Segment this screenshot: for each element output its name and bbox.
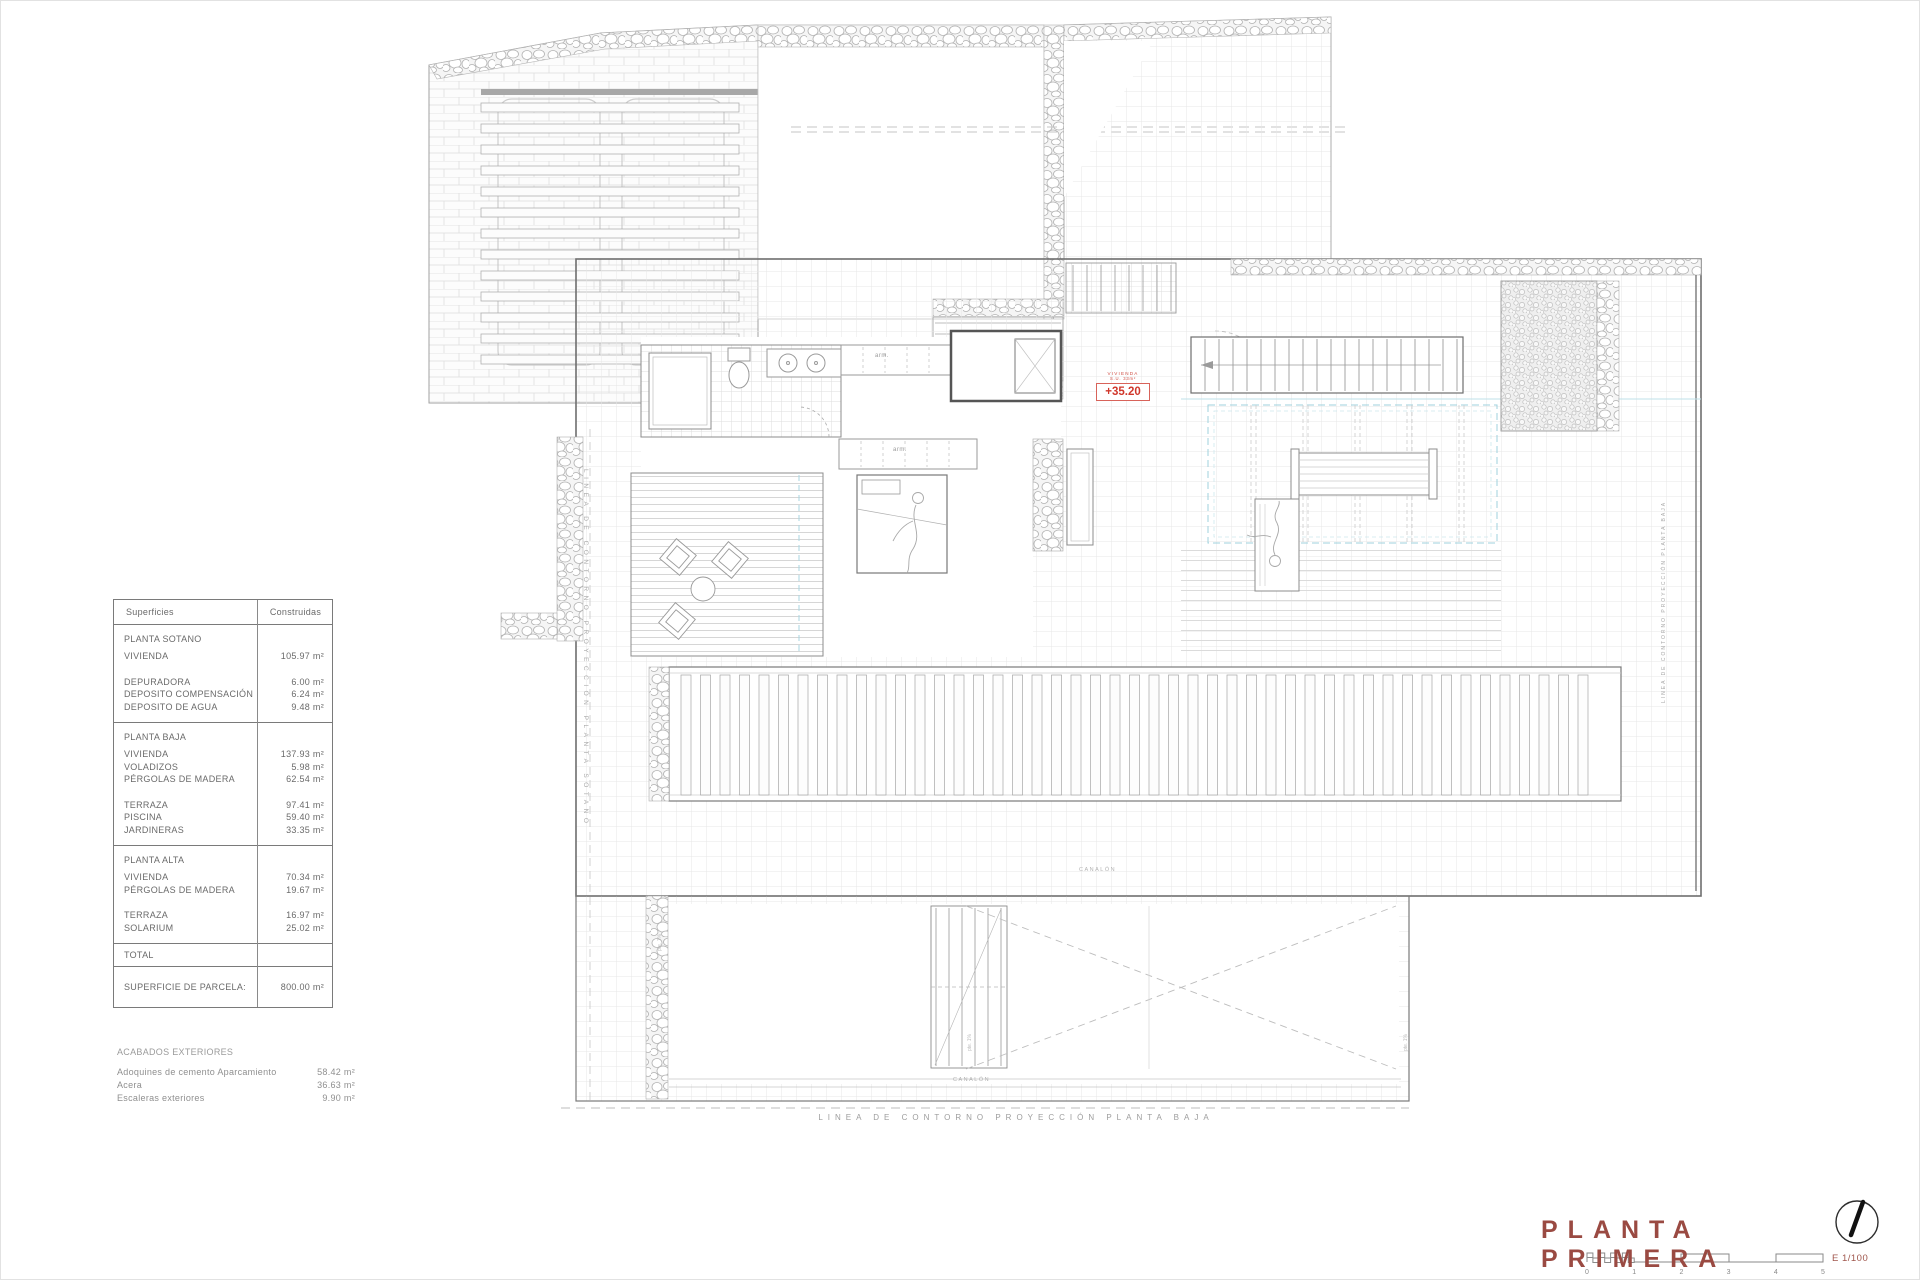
parcel-label: SUPERFICIE DE PARCELA:: [114, 982, 257, 992]
table-section: PLANTA BAJAVIVIENDA137.93 m²VOLADIZOS5.9…: [114, 723, 332, 846]
table-section: PLANTA ALTAVIVIENDA70.34 m²PÉRGOLAS DE M…: [114, 846, 332, 944]
area-row: JARDINERAS33.35 m²: [114, 824, 332, 837]
deck-terrace-left: [631, 473, 823, 656]
slope-label-1: pte. 1%: [657, 934, 663, 951]
area-row: VOLADIZOS5.98 m²: [114, 761, 332, 774]
gutter-label-bottom: CANALÓN: [953, 1077, 990, 1083]
area-row: SOLARIUM25.02 m²: [114, 922, 332, 935]
elevation-area-note: S.U. 33m²: [1089, 376, 1157, 381]
parcel-row: SUPERFICIE DE PARCELA: 800.00 m²: [114, 967, 332, 1007]
gravel-patio: [1501, 281, 1619, 431]
area-row: VIVIENDA105.97 m²: [114, 650, 332, 663]
pergola-beam: [481, 89, 758, 95]
total-row: TOTAL: [114, 944, 332, 967]
area-row: PISCINA59.40 m²: [114, 811, 332, 824]
double-sink: [767, 349, 841, 377]
bedroom: [857, 475, 947, 573]
wardrobe-arm-2: [839, 439, 977, 469]
area-row: TERRAZA16.97 m²: [114, 909, 332, 922]
section-name: PLANTA ALTA: [114, 852, 332, 871]
area-row: VIVIENDA137.93 m²: [114, 748, 332, 761]
table-section: PLANTA SOTANOVIVIENDA105.97 m²DEPURADORA…: [114, 625, 332, 723]
table-column-divider: [257, 600, 258, 1007]
area-row: DEPOSITO COMPENSACIÓN6.24 m²: [114, 688, 332, 701]
table-body: PLANTA SOTANOVIVIENDA105.97 m²DEPURADORA…: [114, 625, 332, 944]
slope-label-2: pte. 1%: [967, 1034, 973, 1051]
toilet: [728, 348, 750, 388]
area-row: TERRAZA97.41 m²: [114, 799, 332, 812]
elevation-marker: VIVIENDA S.U. 33m² +35.20: [1089, 371, 1157, 401]
slope-label-3: pte. 1%: [1403, 1034, 1409, 1051]
wood-pergola-band: [649, 667, 1621, 801]
bathroom: [641, 345, 841, 437]
exterior-finishes-block: ACABADOS EXTERIORES Adoquines de cemento…: [117, 1047, 355, 1105]
bed: [857, 475, 947, 573]
stone-planter: [1033, 439, 1093, 551]
exterior-row: Acera36.63 m²: [117, 1079, 355, 1092]
wood-table: [1291, 449, 1437, 499]
sun-lounger: [1247, 499, 1299, 591]
round-table: [691, 577, 715, 601]
area-row: DEPOSITO DE AGUA9.48 m²: [114, 701, 332, 714]
area-row: DEPURADORA6.00 m²: [114, 676, 332, 689]
gutter-label-top: CANALÓN: [1079, 867, 1116, 873]
section-name: PLANTA SOTANO: [114, 631, 332, 650]
elevation-level-value: +35.20: [1096, 383, 1150, 401]
table-header: Superficies Construidas: [114, 600, 332, 625]
entry-steps: [1066, 263, 1176, 313]
exterior-finishes-title: ACABADOS EXTERIORES: [117, 1047, 355, 1057]
contour-annotation-left: LINEA DE CONTORNO PROYECCIÓN PLANTA SOTA…: [582, 469, 589, 979]
section-name: PLANTA BAJA: [114, 729, 332, 748]
header-superficies: Superficies: [114, 607, 259, 617]
exterior-finishes-rows: Adoquines de cemento Aparcamiento58.42 m…: [117, 1066, 355, 1105]
parcel-value: 800.00 m²: [257, 982, 332, 992]
shower-tray: [649, 353, 711, 429]
contour-annotation-right: LINEA DE CONTORNO PROYECCIÓN PLANTA BAJA: [1661, 447, 1667, 703]
drawing-sheet: 012345 Superficies Construidas PLANTA SO…: [0, 0, 1920, 1280]
exterior-row: Adoquines de cemento Aparcamiento58.42 m…: [117, 1066, 355, 1079]
area-row: PÉRGOLAS DE MADERA62.54 m²: [114, 773, 332, 786]
header-construidas: Construidas: [259, 607, 332, 617]
area-row: VIVIENDA70.34 m²: [114, 871, 332, 884]
wardrobe-arm-1: [841, 345, 951, 375]
main-staircase: [1191, 337, 1463, 393]
scale-label: E 1/100: [1832, 1253, 1868, 1264]
area-row: PÉRGOLAS DE MADERA19.67 m²: [114, 884, 332, 897]
exterior-row: Escaleras exteriores9.90 m²: [117, 1092, 355, 1105]
plan-title: PLANTA PRIMERA: [1541, 1216, 1901, 1274]
upper-terrace: [1064, 17, 1331, 259]
wardrobe-label-1: arm.: [875, 353, 889, 359]
areas-table: Superficies Construidas PLANTA SOTANOVIV…: [113, 599, 333, 1008]
contour-annotation-bottom: LINEA DE CONTORNO PROYECCIÓN PLANTA BAJA: [621, 1113, 1411, 1122]
wardrobe-label-2: arm.: [893, 447, 907, 453]
